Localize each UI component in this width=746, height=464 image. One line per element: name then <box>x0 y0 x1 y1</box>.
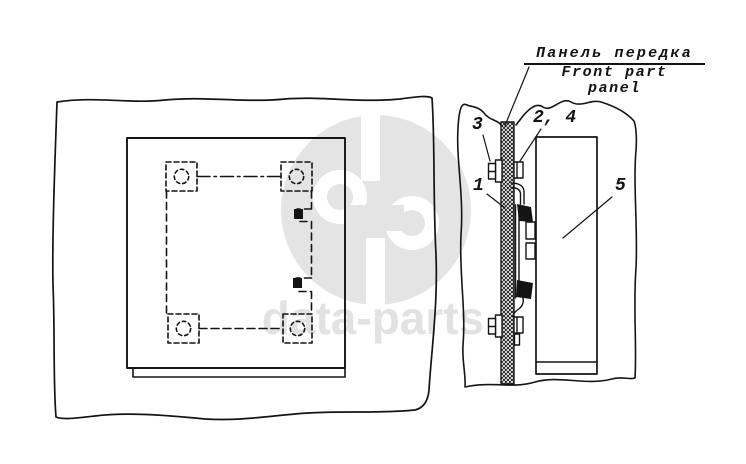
panel-section-hatched <box>501 122 514 384</box>
tab-hole <box>290 321 304 335</box>
corner-tab <box>283 314 312 343</box>
panel-label-en-line2: panel <box>524 81 705 97</box>
callout-3: 3 <box>472 117 483 133</box>
corner-tab <box>168 314 199 343</box>
callout-2-4: 2, 4 <box>533 110 576 126</box>
callout-1: 1 <box>473 178 484 194</box>
tab-hole <box>176 321 190 335</box>
callout-5: 5 <box>615 178 626 194</box>
unit-part-5 <box>536 137 597 374</box>
torn-sheet-outline <box>458 101 637 387</box>
panel-label: Панель передка Front part panel <box>524 45 705 97</box>
dashed-bracket-outline <box>166 162 312 343</box>
plate-bottom-flange <box>133 368 345 377</box>
tab-hole <box>174 169 188 183</box>
figure-canvas: data-parts <box>0 0 746 464</box>
corner-tab <box>166 162 197 191</box>
left-view-front-panel <box>53 96 437 419</box>
corner-tab <box>281 162 312 191</box>
panel-label-en-line1: Front part <box>524 65 705 81</box>
notch-mark <box>294 209 303 219</box>
leader-callout-3 <box>483 135 490 161</box>
leader-callout-2-4 <box>520 129 541 161</box>
tab-hole <box>289 169 303 183</box>
panel-label-ru: Панель передка <box>524 45 705 65</box>
leader-callout-5 <box>563 197 612 238</box>
notch-mark <box>293 278 302 288</box>
outer-sheet-outline <box>53 96 437 419</box>
